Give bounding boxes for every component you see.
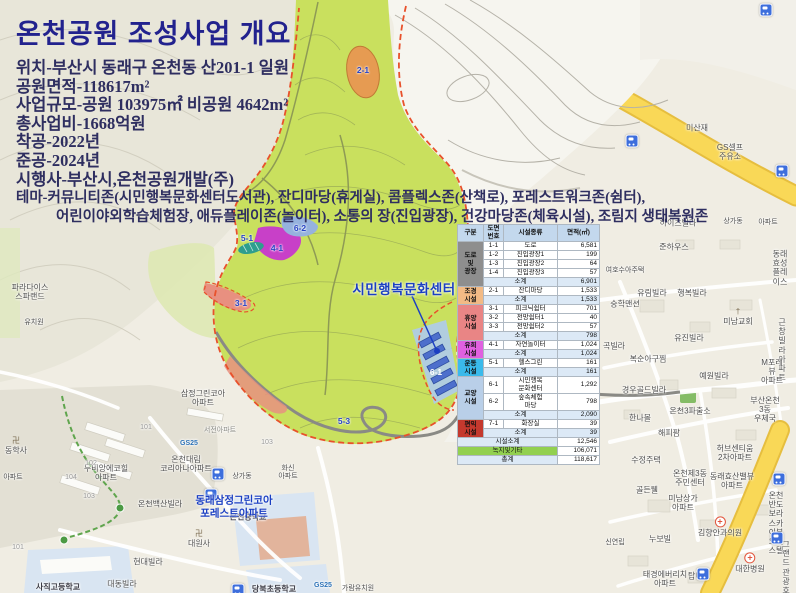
table-cell: 161 [558,359,600,368]
table-cell: 편익 시설 [458,420,484,438]
table-row: 교양 시설6-1시민행복 문화센터1,292 [458,377,600,394]
table-cell: 6-1 [484,377,504,394]
table-row: 조경 시설2-1잔디마당1,533 [458,287,600,296]
table-cell: 6,901 [558,278,600,287]
table-cell: 39 [558,420,600,429]
table-cell: 4-1 [484,341,504,350]
table-cell: 57 [558,269,600,278]
table-cell: 199 [558,251,600,260]
table-cell: 진입광장1 [504,251,558,260]
table-cell: 총계 [458,456,558,465]
table-cell: 조경 시설 [458,287,484,305]
table-row: 유희 시설4-1자연놀이터1,024 [458,341,600,350]
facility-table-wrap: 구분도면 번호시설종류면적(㎡) 도로 및 광장1-1도로6,5811-2진입광… [457,224,600,465]
table-header-cell: 시설종류 [504,225,558,242]
table-cell: 유희 시설 [458,341,484,359]
table-cell: 소계 [484,429,558,438]
facility-table-body: 도로 및 광장1-1도로6,5811-2진입광장11991-3진입광장2641-… [458,242,600,465]
facility-table-header: 구분도면 번호시설종류면적(㎡) [458,225,600,242]
table-cell: 전망쉼터2 [504,323,558,332]
bus-stop-icon [232,584,245,593]
table-row: 총계118,617 [458,456,600,465]
table-cell: 소계 [484,411,558,420]
table-cell: 7-1 [484,420,504,429]
table-cell: 798 [558,394,600,411]
table-row: 편익 시설7-1화장실39 [458,420,600,429]
table-row: 녹지및기타106,071 [458,447,600,456]
table-header-cell: 도면 번호 [484,225,504,242]
table-cell: 소계 [484,350,558,359]
table-cell: 숲속체험 마당 [504,394,558,411]
culture-center-callout: 시민행복문화센터 [352,278,455,298]
table-cell: 소계 [484,332,558,341]
table-cell: 12,546 [558,438,600,447]
table-cell: 화장실 [504,420,558,429]
forest-strip [0,228,20,338]
table-cell: 도로 및 광장 [458,242,484,287]
table-row: 운동 시설5-1헬스그린161 [458,359,600,368]
table-cell: 1,292 [558,377,600,394]
screenshot-root: 파라다이스 스파랜드유치원卍동학사아파트삼정그린코아 아파트서전아파트GS25온… [0,0,796,593]
table-cell: 1,024 [558,341,600,350]
table-cell: 1-1 [484,242,504,251]
table-row: 도로 및 광장1-1도로6,581 [458,242,600,251]
table-cell: 녹지및기타 [458,447,558,456]
table-cell: 3-2 [484,314,504,323]
table-cell: 118,617 [558,456,600,465]
table-cell: 전망쉼터1 [504,314,558,323]
table-cell: 1-4 [484,269,504,278]
table-cell: 1,533 [558,296,600,305]
table-cell: 57 [558,323,600,332]
table-cell: 피크닉쉼터 [504,305,558,314]
bus-stop-icon [697,568,710,581]
bus-stop-icon [771,532,784,545]
table-cell: 시설소계 [458,438,558,447]
table-row: 시설소계12,546 [458,438,600,447]
table-header-cell: 구분 [458,225,484,242]
table-cell: 소계 [484,296,558,305]
table-cell: 자연놀이터 [504,341,558,350]
bus-stop-icon [776,165,789,178]
table-cell: 교양 시설 [458,377,484,420]
table-cell: 1,024 [558,350,600,359]
table-cell: 헬스그린 [504,359,558,368]
table-cell: 5-1 [484,359,504,368]
facility-table: 구분도면 번호시설종류면적(㎡) 도로 및 광장1-1도로6,5811-2진입광… [457,224,600,465]
table-cell: 64 [558,260,600,269]
table-row: 휴양 시설3-1피크닉쉼터701 [458,305,600,314]
table-cell: 소계 [484,368,558,377]
table-cell: 701 [558,305,600,314]
table-cell: 잔디마당 [504,287,558,296]
table-cell: 진입광장3 [504,269,558,278]
table-cell: 진입광장2 [504,260,558,269]
table-cell: 6-2 [484,394,504,411]
table-cell: 소계 [484,278,558,287]
bus-stop-icon [773,473,786,486]
apartment-callout: 동래삼정그린코아 포레스트아파트 [195,494,272,519]
table-cell: 3-1 [484,305,504,314]
table-cell: 2-1 [484,287,504,296]
table-cell: 휴양 시설 [458,305,484,341]
table-header-cell: 면적(㎡) [558,225,600,242]
bus-stop-icon [760,4,773,17]
table-cell: 161 [558,368,600,377]
table-cell: 106,071 [558,447,600,456]
table-cell: 시민행복 문화센터 [504,377,558,394]
table-cell: 3-3 [484,323,504,332]
table-cell: 798 [558,332,600,341]
bus-stop-icon [626,135,639,148]
bus-stop-icon [212,468,225,481]
table-cell: 1,533 [558,287,600,296]
table-cell: 1-3 [484,260,504,269]
table-cell: 6,581 [558,242,600,251]
table-cell: 39 [558,429,600,438]
table-cell: 1-2 [484,251,504,260]
table-cell: 2,090 [558,411,600,420]
table-cell: 운동 시설 [458,359,484,377]
table-cell: 도로 [504,242,558,251]
table-cell: 40 [558,314,600,323]
